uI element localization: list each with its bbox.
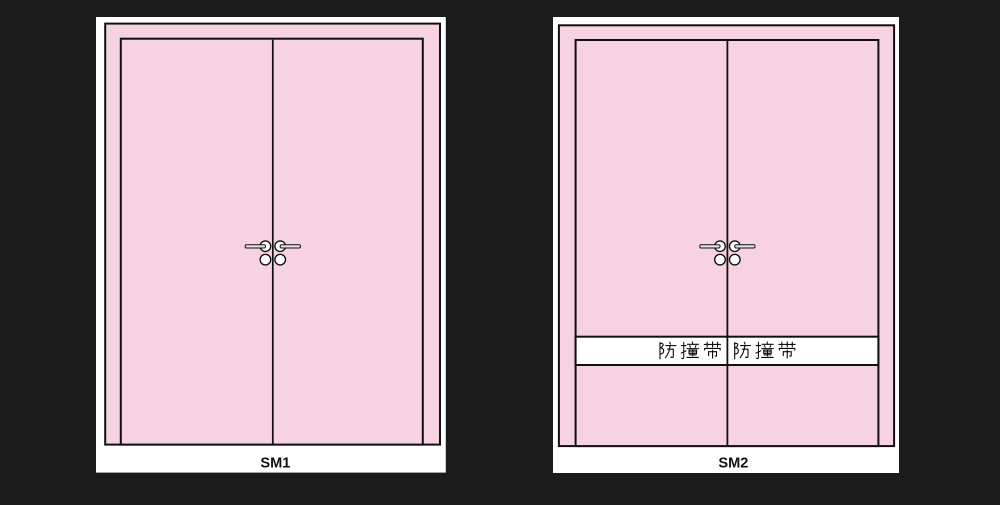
svg-text:SM2: SM2 [718,456,748,472]
svg-text:SM1: SM1 [260,456,290,472]
